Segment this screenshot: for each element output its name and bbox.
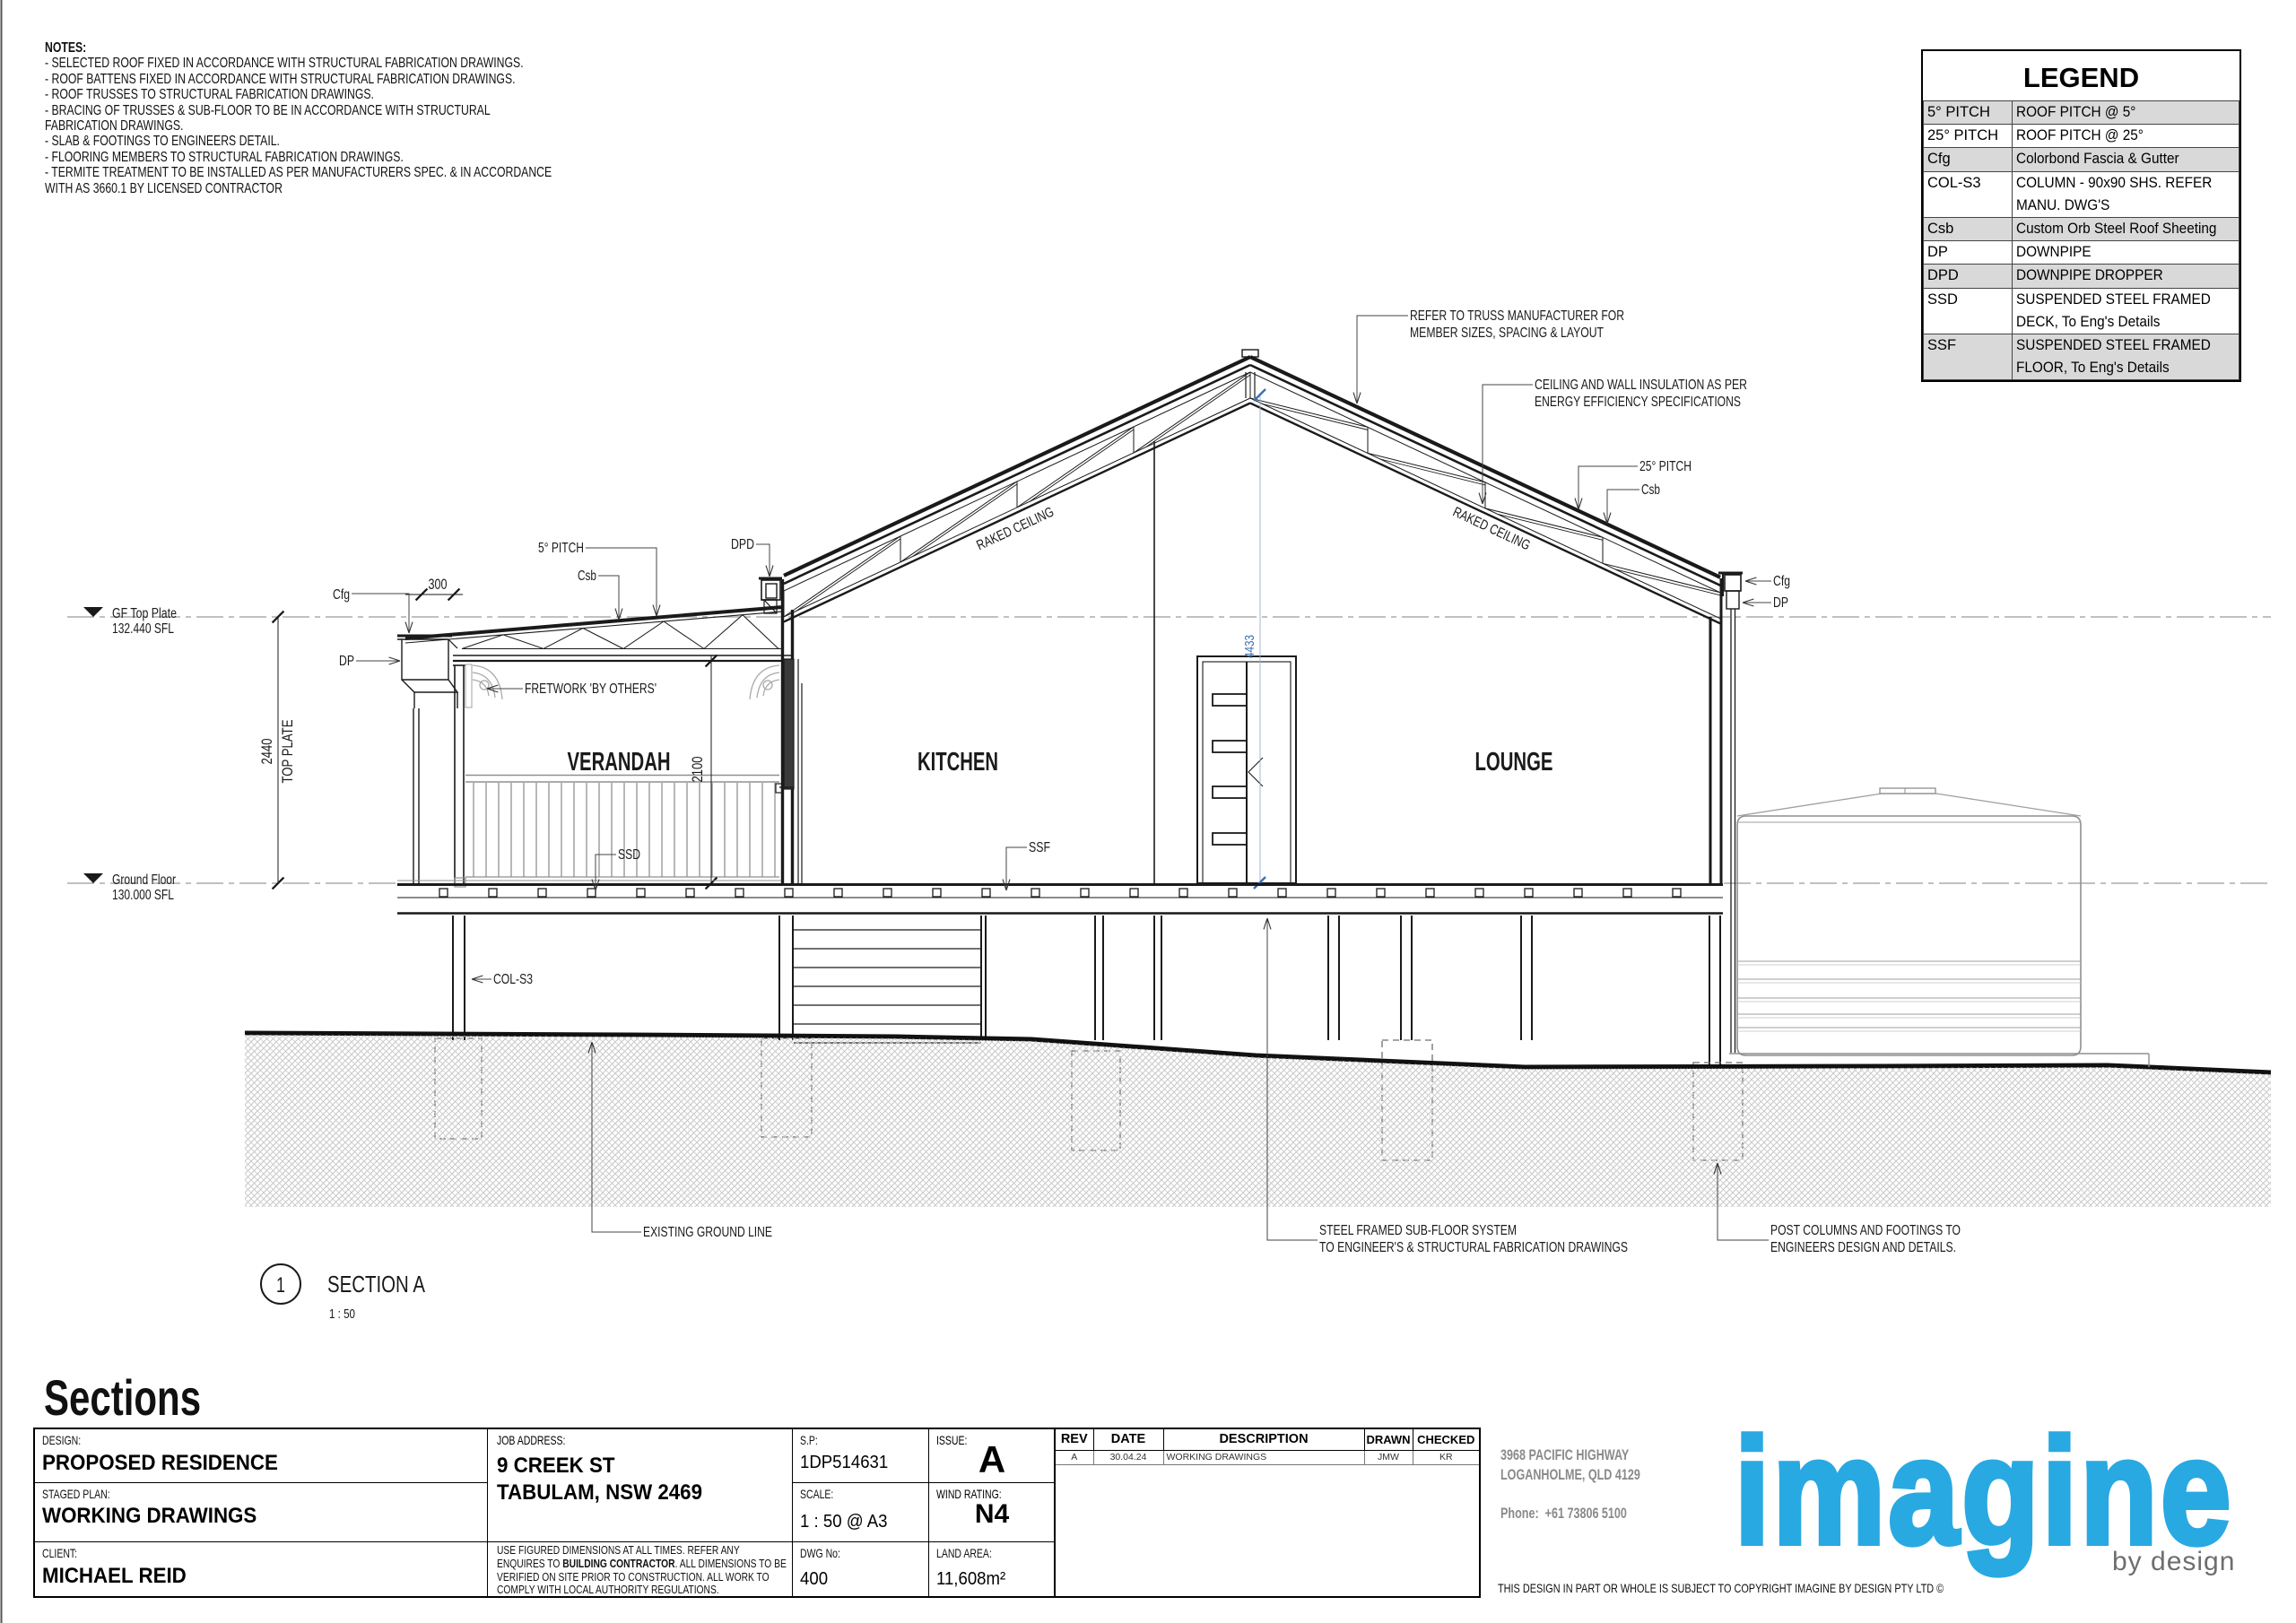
svg-text:25° PITCH: 25° PITCH	[1639, 459, 1692, 474]
svg-text:Cfg: Cfg	[333, 587, 350, 603]
svg-text:Csb: Csb	[1641, 482, 1660, 498]
svg-text:STEEL FRAMED SUB-FLOOR SYSTEM: STEEL FRAMED SUB-FLOOR SYSTEM	[1319, 1223, 1517, 1238]
svg-text:RAKED CEILING: RAKED CEILING	[974, 505, 1056, 554]
svg-text:DPD: DPD	[731, 537, 754, 552]
svg-text:COL-S3: COL-S3	[493, 972, 533, 987]
svg-text:FRETWORK 'BY OTHERS': FRETWORK 'BY OTHERS'	[525, 681, 657, 697]
svg-text:2100: 2100	[690, 757, 706, 783]
svg-text:TOP PLATE: TOP PLATE	[280, 720, 296, 784]
svg-text:VERANDAH: VERANDAH	[568, 748, 671, 777]
svg-text:CEILING AND WALL INSULATION AS: CEILING AND WALL INSULATION AS PER	[1535, 378, 1747, 393]
svg-text:1: 1	[276, 1273, 285, 1298]
svg-text:REFER TO TRUSS MANUFACTURER FO: REFER TO TRUSS MANUFACTURER FOR	[1410, 308, 1624, 324]
svg-text:ENGINEERS DESIGN AND DETAILS.: ENGINEERS DESIGN AND DETAILS.	[1770, 1240, 1956, 1255]
svg-text:2440: 2440	[259, 739, 275, 765]
svg-text:4433: 4433	[1242, 635, 1257, 658]
svg-text:EXISTING GROUND LINE: EXISTING GROUND LINE	[643, 1225, 772, 1240]
svg-text:SECTION A: SECTION A	[327, 1271, 426, 1298]
svg-text:5° PITCH: 5° PITCH	[538, 541, 584, 556]
svg-text:SSF: SSF	[1029, 840, 1050, 855]
svg-text:DP: DP	[339, 654, 354, 669]
svg-text:KITCHEN: KITCHEN	[918, 748, 998, 777]
svg-text:LOUNGE: LOUNGE	[1475, 748, 1553, 777]
svg-text:DP: DP	[1773, 595, 1788, 611]
svg-text:130.000 SFL: 130.000 SFL	[112, 888, 174, 903]
svg-text:TO ENGINEER'S & STRUCTURAL FAB: TO ENGINEER'S & STRUCTURAL FABRICATION D…	[1319, 1240, 1628, 1255]
svg-text:MEMBER SIZES, SPACING & LAYOUT: MEMBER SIZES, SPACING & LAYOUT	[1410, 325, 1604, 341]
svg-text:GF Top Plate: GF Top Plate	[112, 606, 177, 621]
svg-text:Ground Floor: Ground Floor	[112, 872, 176, 888]
svg-text:300: 300	[429, 577, 448, 593]
svg-text:ENERGY EFFICIENCY SPECIFICATIO: ENERGY EFFICIENCY SPECIFICATIONS	[1535, 395, 1741, 410]
svg-text:SSD: SSD	[618, 847, 640, 863]
svg-text:Cfg: Cfg	[1773, 574, 1790, 589]
svg-text:Csb: Csb	[578, 568, 596, 584]
svg-text:132.440 SFL: 132.440 SFL	[112, 621, 174, 637]
svg-text:1 : 50: 1 : 50	[329, 1306, 355, 1322]
svg-text:POST COLUMNS AND FOOTINGS TO: POST COLUMNS AND FOOTINGS TO	[1770, 1223, 1961, 1238]
